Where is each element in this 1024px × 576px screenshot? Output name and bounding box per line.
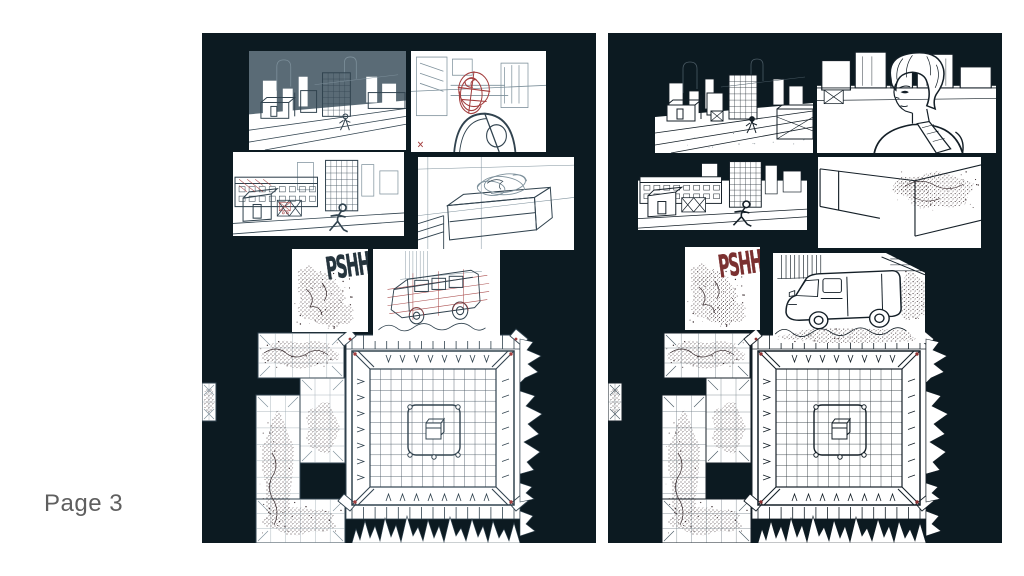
panel-street-run bbox=[638, 154, 807, 230]
svg-text:PSHH: PSHH bbox=[323, 249, 368, 287]
panel-figure-overlooking-city bbox=[817, 48, 996, 153]
comic-page-inked[interactable]: PSHH bbox=[608, 33, 1002, 543]
svg-text:PSHH: PSHH bbox=[716, 247, 760, 285]
panel-street-run bbox=[233, 152, 404, 236]
panel-city-establishing-shot bbox=[249, 51, 406, 150]
panel-city-establishing-shot bbox=[655, 53, 813, 153]
panel-container-smoke bbox=[418, 157, 574, 250]
panel-figure-overlooking-city bbox=[411, 51, 546, 152]
panel-van-arrival bbox=[373, 249, 500, 341]
comic-page-sketch[interactable]: PSHH bbox=[202, 33, 596, 543]
page-number-label: Page 3 bbox=[44, 490, 123, 518]
panel-sfx-smoke-burst: PSHH bbox=[292, 249, 368, 332]
panel-sfx-smoke-burst: PSHH bbox=[685, 247, 760, 330]
panel-van-arrival bbox=[773, 253, 925, 343]
panel-container-smoke bbox=[818, 157, 981, 248]
